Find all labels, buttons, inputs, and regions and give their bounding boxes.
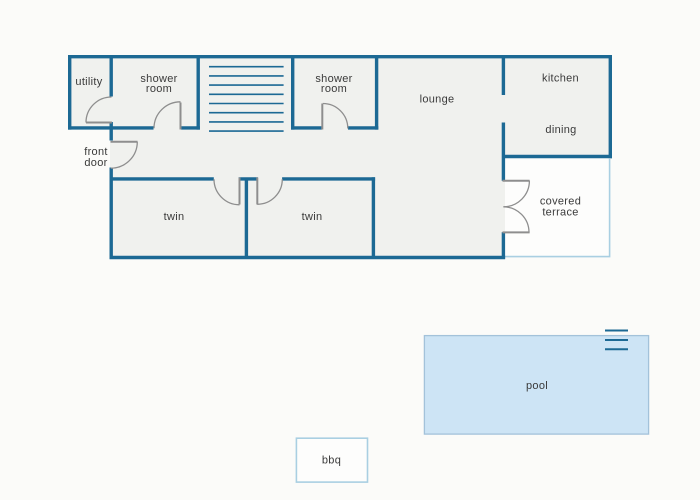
svg-text:room: room: [321, 83, 347, 95]
svg-text:door: door: [84, 157, 107, 169]
svg-text:pool: pool: [526, 380, 548, 392]
svg-text:room: room: [146, 83, 172, 95]
svg-text:covered: covered: [540, 195, 581, 207]
svg-text:bbq: bbq: [322, 455, 341, 467]
svg-text:terrace: terrace: [542, 207, 578, 219]
svg-text:lounge: lounge: [420, 94, 455, 106]
svg-text:kitchen: kitchen: [542, 73, 579, 85]
svg-text:utility: utility: [75, 76, 102, 88]
svg-text:dining: dining: [545, 124, 576, 136]
svg-text:twin: twin: [164, 211, 185, 223]
svg-text:twin: twin: [302, 211, 323, 223]
